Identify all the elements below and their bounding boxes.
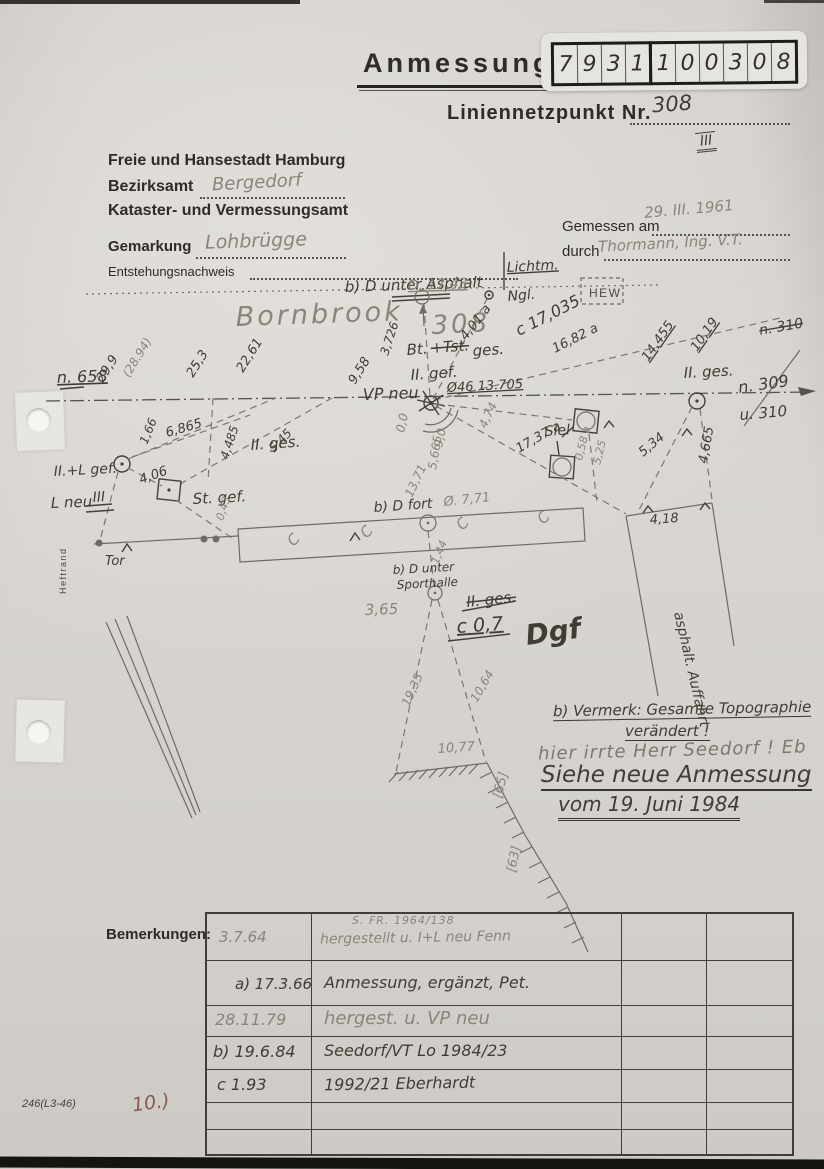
table-row: [207, 1130, 792, 1154]
sketch-label: 16,82 a: [550, 321, 601, 357]
sketch-label: 10,64: [467, 668, 496, 705]
sketch-label: III: [92, 489, 105, 506]
sketch-label: Bornbrook: [235, 296, 403, 333]
sketch-label: 5,34: [636, 430, 668, 460]
table-row: 3.7.64 S. FR. 1964/138 hergestellt u. I+…: [207, 914, 792, 961]
sketch-label: HEW: [589, 286, 622, 300]
remark-note: Seedorf/VT Lo 1984/23: [324, 1041, 507, 1060]
sketch-label: +Tst.: [430, 336, 470, 357]
sketch-label: 22,61: [234, 336, 266, 376]
sketch-label: 10,19: [688, 315, 722, 354]
sketch-label: 3,65: [365, 600, 399, 619]
sketch-label: 5,25: [590, 439, 609, 466]
remark-date: 3.7.64: [219, 928, 267, 946]
table-row: c 1.93 1992/21 Eberhardt: [207, 1070, 792, 1103]
sketch-label: 4,665: [696, 425, 717, 464]
sketch-label: Tor: [105, 554, 126, 569]
sketch-label: 10,77: [437, 739, 476, 757]
sketch-label: 14,455: [639, 318, 677, 364]
scanned-survey-document: Anmessung 7 9 3 1 1 0 0 3 0 8 Liniennetz…: [0, 0, 824, 1169]
sketch-label: 4,18: [649, 511, 679, 528]
sketch-label: 25,3: [184, 348, 212, 381]
table-row: [207, 1103, 792, 1130]
sketch-label: b) D fort: [373, 496, 433, 516]
sketch-label: 19,35: [399, 671, 426, 708]
sketch-label: II. ges.: [250, 433, 301, 454]
sketch-label: Lichtm.: [506, 257, 559, 276]
sketch-label: Dgf: [523, 611, 586, 652]
remarks-label: Bemerkungen:: [106, 926, 211, 943]
remark-date: c 1.93: [217, 1075, 267, 1094]
sketch-label: 4,485: [218, 424, 242, 461]
form-number: 246(L3-46): [22, 1098, 76, 1110]
remark-date: a) 17.3.66: [235, 975, 312, 993]
sketch-label: II. ges.: [683, 361, 734, 382]
sketch-label: 13,71: [402, 462, 429, 499]
remark-note: hergestellt u. I+L neu Fenn: [320, 928, 511, 947]
sketch-label: n. 309: [737, 371, 790, 397]
sketch-label: Ngl.: [507, 287, 536, 305]
sketch-label: 4,06: [137, 464, 169, 488]
sketch-label: b) D unter: [392, 560, 455, 577]
sketch-label: [63]: [504, 845, 524, 874]
sketch-label: 0,58 a: [572, 425, 593, 462]
sketch-label: (28.94): [120, 335, 155, 379]
table-row: 28.11.79 hergest. u. VP neu: [207, 1006, 792, 1037]
remark-note-top: S. FR. 1964/138: [352, 914, 455, 927]
sketch-label: C: [452, 514, 473, 534]
sketch-label: 5,665: [425, 434, 445, 470]
sketch-label: Ø. 7,71: [442, 490, 491, 510]
remarks-table: 3.7.64 S. FR. 1964/138 hergestellt u. I+…: [205, 912, 794, 1156]
sketch-label: II.+L gef.: [53, 461, 117, 480]
remark-date: b) 19.6.84: [213, 1042, 296, 1061]
remark-note: hergest. u. VP neu: [324, 1008, 490, 1029]
table-row: b) 19.6.84 Seedorf/VT Lo 1984/23: [207, 1037, 792, 1070]
table-row: a) 17.3.66 Anmessung, ergänzt, Pet.: [207, 961, 792, 1006]
sketch-label: C: [283, 530, 304, 550]
sketch-label: 29,9: [94, 353, 122, 386]
sketch-label: 4,74: [476, 400, 500, 430]
sketch-label: 0,0: [393, 412, 411, 434]
sketch-label: VP neu: [362, 383, 418, 404]
remark-date: 28.11.79: [215, 1010, 286, 1029]
sketch-label: n. 310: [758, 315, 805, 338]
sketch-label: D. 17.43: [408, 276, 468, 294]
sketch-label: 6,865: [164, 416, 204, 441]
see-new-line-1: Siehe neue Anmessung: [541, 762, 812, 791]
sketch-label: Sporthalle: [396, 575, 458, 592]
sketch-label: Bt.: [406, 340, 428, 359]
sketch-label: ges.: [472, 340, 505, 360]
remark-note: 1992/21 Eberhardt: [324, 1073, 476, 1095]
sketch-label: L neu: [51, 493, 93, 512]
sketch-label: II. ges.: [466, 588, 517, 611]
see-new-line-2: vom 19. Juni 1984: [558, 792, 740, 821]
sketch-label: Siel: [544, 422, 570, 440]
sketch-label: Heftrand: [58, 547, 68, 594]
sketch-label: Ø46 13.705: [445, 377, 523, 396]
sketch-label: 9,58: [346, 355, 374, 388]
vermerk-line-2: verändert !: [625, 722, 710, 741]
sketch-label: c 0,7: [456, 613, 504, 638]
remark-note: Anmessung, ergänzt, Pet.: [324, 973, 530, 992]
sketch-label: 1,66: [137, 416, 160, 446]
sketch-label: u. 310: [739, 402, 788, 424]
